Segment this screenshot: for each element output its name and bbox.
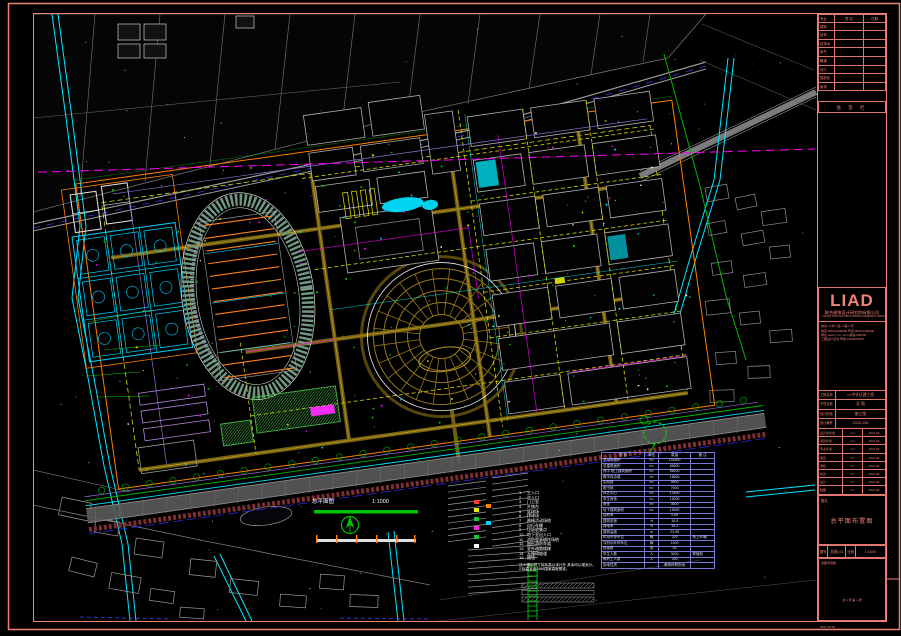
- village-southwest: [33, 470, 816, 622]
- road-section-detail: [522, 566, 594, 620]
- drawing-canvas[interactable]: [0, 0, 901, 636]
- parking-rows: [448, 473, 538, 593]
- north-arrow-icon: [342, 516, 359, 534]
- grandstand: [185, 237, 220, 368]
- scale-bar: [314, 510, 418, 543]
- cad-sheet: 总平面图 1:1000 1主入口 2次入口 3门卫室 4升旗台 5篮球场 6排球…: [0, 0, 901, 636]
- bottom-blue-dashes: [80, 617, 430, 619]
- stadium: [168, 184, 328, 408]
- village-east: [705, 184, 792, 402]
- northwest-buildings: [303, 91, 473, 276]
